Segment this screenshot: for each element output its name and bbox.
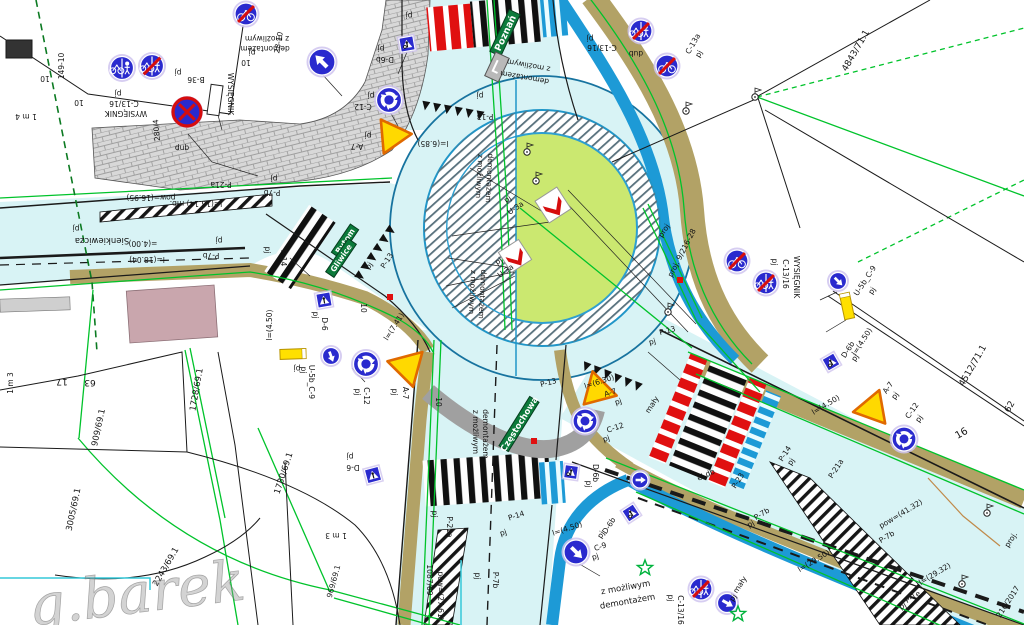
map-label: l=(18.04)	[129, 255, 165, 264]
map-label: D-6	[346, 463, 359, 472]
map-label: pj	[271, 174, 278, 183]
map-label: pj	[353, 389, 362, 396]
c13-16-slash-sign-icon	[688, 576, 715, 603]
map-label: pj	[115, 89, 122, 98]
c12-sign-icon	[374, 85, 404, 115]
map-label: pj	[406, 11, 413, 20]
map-label: pj	[175, 68, 182, 77]
map-label: C-13/16	[781, 259, 790, 289]
traffic-plan-map: PoznańBytomGliwiceCzęstochowa z możliwym…	[0, 0, 1024, 625]
red-dot-sign-icon	[387, 294, 393, 300]
map-label: A-7	[351, 142, 364, 151]
map-label: pj	[73, 224, 80, 233]
map-label: pj	[216, 236, 223, 245]
map-label: P-7b	[491, 572, 500, 589]
map-label: P-14	[279, 250, 288, 267]
d6-sign-icon	[314, 290, 335, 311]
map-label: P-7b	[202, 251, 219, 260]
c13-16-slash-sign-icon	[138, 52, 166, 80]
map-label: 10	[40, 74, 50, 83]
map-label: 1 m 3	[325, 531, 347, 540]
map-label: pow=(27.61)	[436, 571, 445, 620]
c12-sign-icon	[571, 407, 600, 436]
map-label: pj	[666, 595, 675, 602]
map-label: 10	[74, 98, 84, 107]
c9-sign-icon	[307, 47, 338, 78]
map-label: D-6	[320, 317, 329, 330]
map-label: B-36	[187, 75, 205, 84]
map-label: 63	[84, 377, 95, 387]
c13a-slash-sign-icon	[233, 1, 260, 28]
c13a-slash-sign-icon	[724, 248, 751, 275]
c13-16-slash-sign-icon	[628, 18, 655, 45]
c12-sign-icon	[351, 349, 381, 379]
map-label: D-6b	[591, 464, 600, 482]
map-label: l=(4.50)	[265, 309, 274, 340]
map-label: C-12	[354, 102, 372, 111]
map-label: z możliwym	[471, 410, 480, 454]
map-label: l=(18.14) mb.	[170, 199, 223, 208]
map-label: pj	[263, 247, 272, 254]
map-label: pj	[473, 573, 482, 580]
map-label: C-13/16	[676, 595, 685, 625]
red-dot-sign-icon	[677, 277, 683, 283]
map-label: P-21a	[210, 180, 231, 189]
map-label: 1 m 4	[15, 112, 37, 121]
map-label: 10	[241, 58, 251, 67]
map-label: P-7b	[263, 188, 280, 197]
map-label: Sienkiewicza	[75, 235, 130, 245]
map-label: demontażem	[481, 409, 490, 458]
map-label: C-12	[362, 387, 371, 405]
map-label: pow=(16.95)	[126, 193, 175, 202]
red-dot-sign-icon	[531, 438, 537, 444]
zebra-south	[422, 452, 551, 507]
map-label: C-13/16	[109, 99, 139, 108]
u5b-sign-icon	[280, 349, 306, 360]
map-label: pj	[249, 48, 256, 57]
map-label: 10	[359, 303, 368, 313]
map-label: D-6b	[376, 55, 394, 64]
map-label: pj	[347, 452, 354, 461]
map-label: =(4.00)	[129, 239, 158, 248]
c9-sign-icon	[630, 470, 651, 491]
map-label: pj	[770, 259, 779, 266]
map-label: P-13	[476, 112, 493, 121]
building-footprint	[126, 285, 217, 343]
map-label: 10	[434, 397, 443, 407]
map-label: dub	[175, 143, 190, 152]
map-label: 17	[56, 376, 67, 386]
map-label: pj	[294, 364, 301, 373]
map-label: 280/4	[151, 119, 162, 142]
c9-sign-icon	[562, 538, 591, 567]
d6b-sign-icon	[397, 34, 418, 55]
map-label: pj	[587, 34, 594, 43]
map-label: pj	[390, 389, 399, 396]
map-label: 1 m 3	[6, 372, 15, 394]
map-label: P-21a	[445, 516, 454, 537]
map-label: WYSIĘGNIK	[104, 109, 147, 118]
map-label: pj	[311, 312, 320, 319]
d6b-sign-icon	[561, 462, 580, 481]
map-label: pj	[584, 481, 593, 488]
c13-16-slash-sign-icon	[753, 270, 780, 297]
map-label: 149-10	[57, 52, 66, 79]
map-label: pj	[430, 511, 439, 518]
c9-sign-icon	[827, 270, 849, 292]
c13-16-sign-icon	[108, 54, 136, 82]
map-label: pj	[477, 91, 484, 100]
map-label: pj	[378, 44, 385, 53]
map-label: A-7	[401, 387, 410, 400]
c13a-slash-sign-icon	[654, 53, 681, 80]
map-label: C-13/16	[587, 43, 617, 52]
c12-sign-icon	[890, 425, 919, 454]
map-label: pj	[368, 91, 375, 100]
c9-sign-icon	[320, 345, 342, 367]
red-crossing-north	[426, 4, 474, 52]
b36-sign-icon	[171, 96, 203, 128]
map-label: l=(6.85)	[417, 139, 448, 148]
gray-sidewalk-strip	[0, 297, 70, 312]
map-label: WYSIĘGNIK	[792, 256, 801, 299]
plan-canvas: PoznańBytomGliwiceCzęstochowa z możliwym…	[0, 0, 1024, 625]
map-label: dub	[629, 49, 644, 58]
map-label: pj	[365, 131, 372, 140]
map-label: WYSIĘGNIK	[226, 73, 235, 116]
bike-crossing-south	[539, 461, 566, 505]
map-label: 1087/69	[425, 564, 434, 595]
